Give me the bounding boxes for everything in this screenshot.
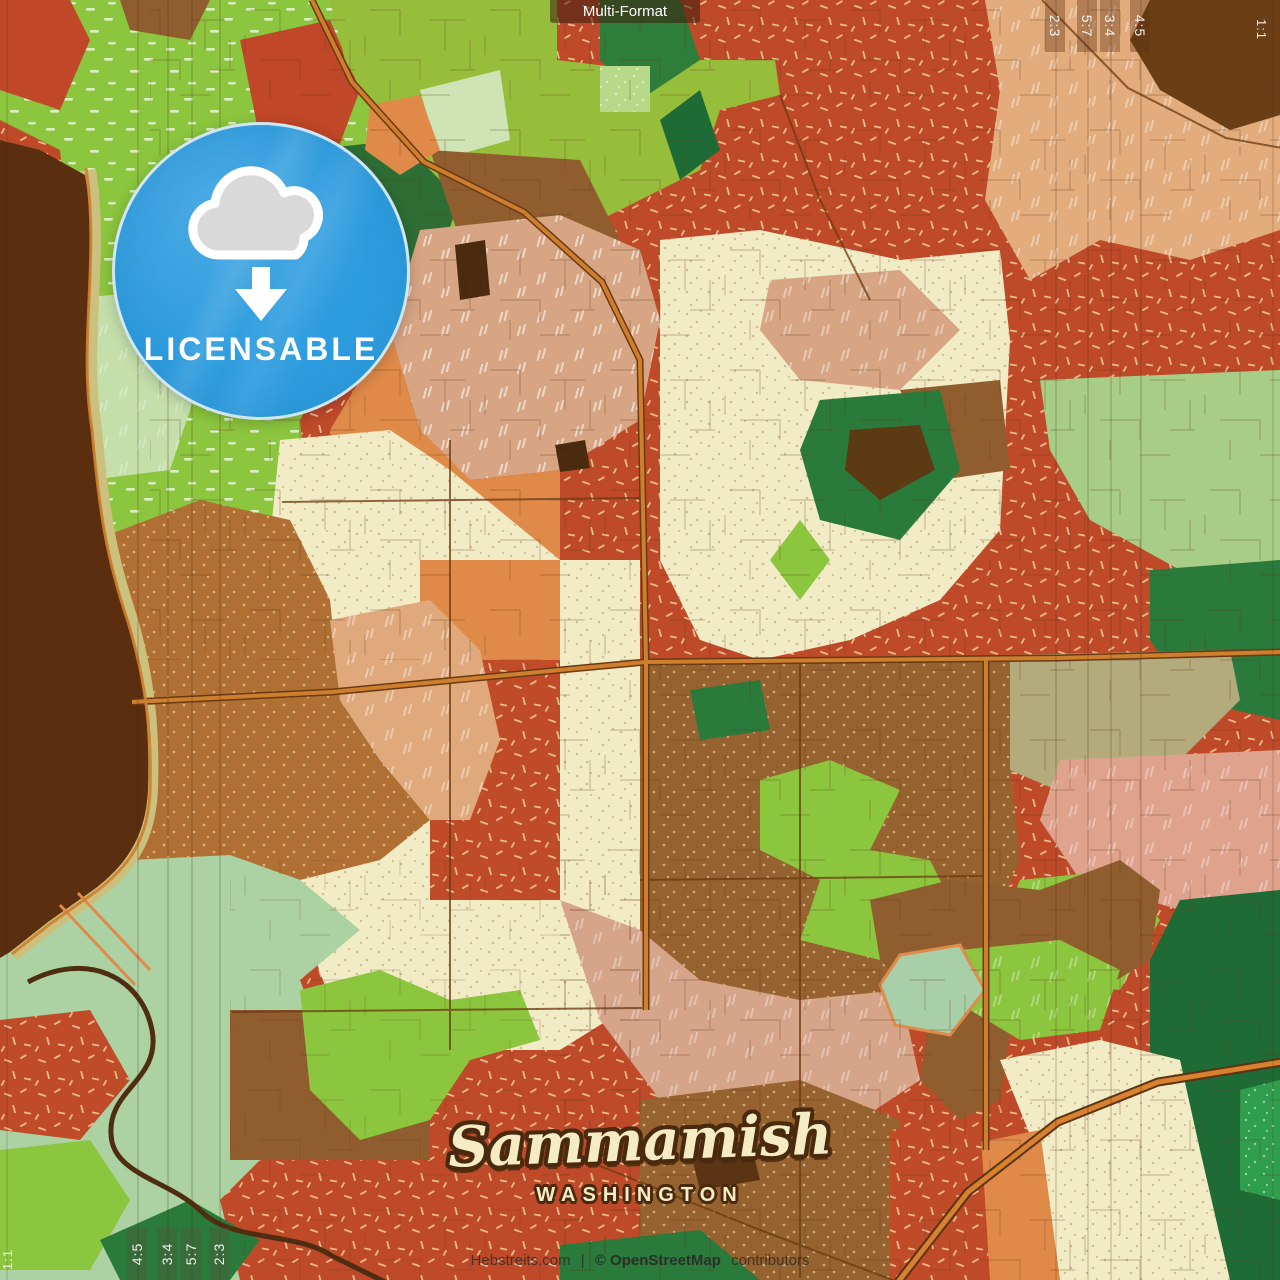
cloud-icon (176, 159, 346, 263)
crop-line-1-1-right (1272, 0, 1274, 1280)
ratio-chip-4-5-bottom: 4:5 (127, 1228, 147, 1280)
ratio-chip-2-3-bottom: 2:3 (209, 1228, 229, 1280)
attribution-bar: Hebstreits.com | © OpenStreetMap contrib… (468, 1252, 813, 1269)
ratio-chip-3-4: 3:4 (1100, 0, 1120, 52)
ratio-chip-4-5: 4:5 (1130, 0, 1150, 52)
attribution-suffix: contributors (731, 1252, 809, 1269)
licensable-badge[interactable]: LICENSABLE (112, 122, 410, 420)
ratio-chip-1-1-left: 1:1 (0, 1236, 16, 1280)
multi-format-chip: Multi-Format (550, 0, 700, 23)
ratio-chip-2-3: 2:3 (1045, 0, 1065, 52)
ratio-chip-5-7-bottom: 5:7 (181, 1228, 201, 1280)
download-arrow-icon (225, 267, 297, 321)
multi-format-label: Multi-Format (583, 3, 667, 20)
ratio-chip-1-1-right: 1:1 (1252, 6, 1272, 52)
attribution-site-link[interactable]: Hebstreits.com (471, 1252, 571, 1269)
crop-line-1-1-left (6, 0, 8, 1280)
attribution-separator: | (581, 1252, 585, 1269)
crop-line-4-5-right (1140, 0, 1142, 1280)
crop-line-2-3-right (1055, 0, 1057, 1280)
crop-line-5-7-right (1087, 0, 1089, 1280)
crop-line-3-4-right (1110, 0, 1112, 1280)
badge-label: LICENSABLE (144, 331, 378, 368)
ratio-chip-3-4-bottom: 3:4 (157, 1228, 177, 1280)
ratio-chip-5-7: 5:7 (1077, 0, 1097, 52)
attribution-osm-link[interactable]: © OpenStreetMap (595, 1252, 721, 1269)
map-poster: 2:3 5:7 3:4 4:5 1:1 4:5 3:4 5:7 2:3 1:1 … (0, 0, 1280, 1280)
